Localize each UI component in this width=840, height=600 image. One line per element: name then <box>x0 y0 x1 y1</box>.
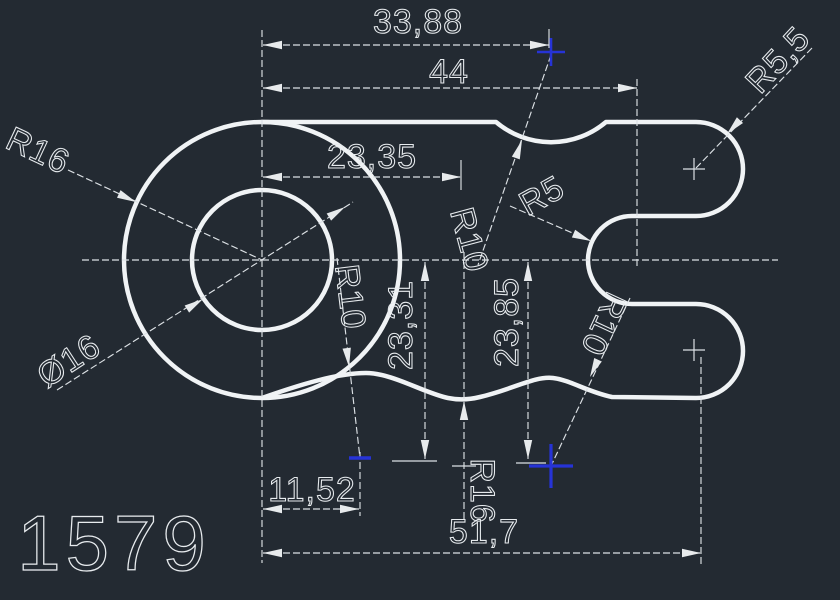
arc-center-mark-bottom <box>683 339 705 361</box>
dim-text-33-88: 33,88 <box>373 3 463 41</box>
dim-text-11-52: 11,52 <box>268 471 356 509</box>
cad-canvas[interactable]: 33,88 44 23,35 11,52 51,7 23,31 23,85 R1… <box>0 0 840 600</box>
dim-text-23-31: 23,31 <box>382 280 420 370</box>
dim-text-r5: R5 <box>513 168 571 223</box>
leader-r10-top <box>478 55 551 265</box>
dim-text-r16-bottom: R16 <box>463 458 501 523</box>
dim-text-44: 44 <box>429 53 469 91</box>
dim-text-r16-left: R16 <box>0 120 75 182</box>
dim-text-d16: Ø16 <box>30 327 107 396</box>
cad-viewport[interactable]: 33,88 44 23,35 11,52 51,7 23,31 23,85 R1… <box>0 0 840 600</box>
dim-text-r5-5: R5,5 <box>738 19 818 100</box>
grip-notch-center[interactable] <box>537 38 565 66</box>
dim-text-r10-left: R10 <box>327 262 373 332</box>
arrowheads <box>117 41 743 557</box>
arc-center-mark-top <box>683 158 705 180</box>
dim-text-r10-right: R10 <box>573 286 635 361</box>
dim-text-23-85: 23,85 <box>488 277 526 367</box>
grip-wave-center[interactable] <box>529 444 573 488</box>
leader-r16-left <box>68 170 262 260</box>
dim-text-r10-top: R10 <box>442 204 496 277</box>
drawing-number: 1579 <box>17 499 211 587</box>
dim-text-23-35: 23,35 <box>327 138 417 176</box>
